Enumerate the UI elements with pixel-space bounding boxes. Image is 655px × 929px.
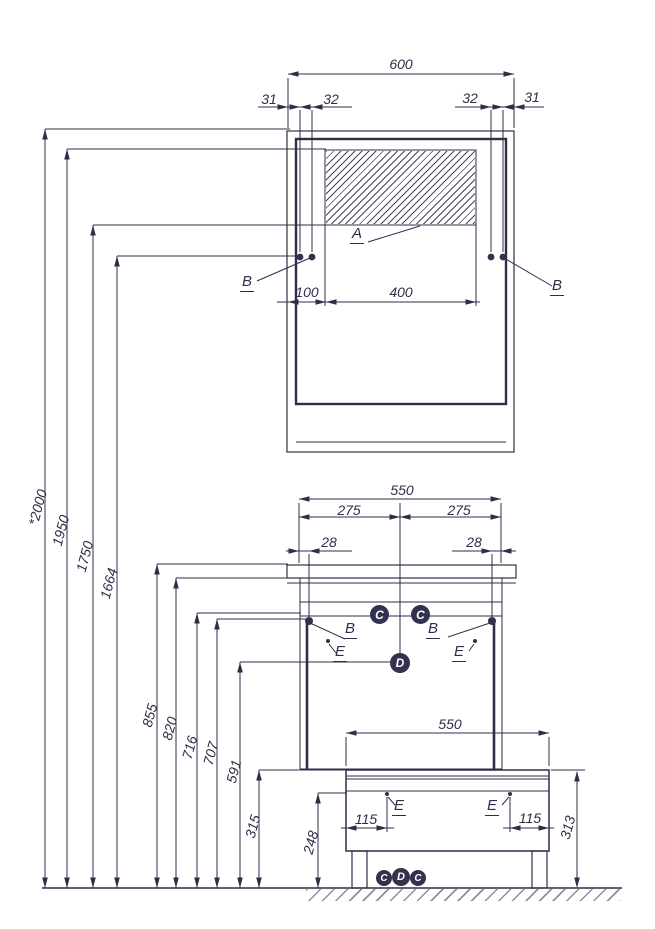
callout-screw-mid-left: E [333,644,347,662]
callout-screw-bench-right: E [485,798,499,816]
dim-leg-inset-right: 115 [508,809,552,828]
callout-hatch-area: A [350,226,364,244]
marker-c-right: C [411,605,430,624]
marker-d-center: D [390,653,410,673]
dim-bolt-offset-left: 28 [307,533,351,552]
dim-half-width-left: 275 [327,501,371,520]
callout-bolt-lower-left: B [343,621,357,639]
dim-bench-width: 550 [428,715,472,734]
callout-screw-mid-right: E [452,644,466,662]
callout-bolt-upper-left: B [240,274,254,292]
dim-hatch-offset: 100 [285,283,329,302]
dim-leg-inset-left: 115 [344,810,388,829]
marker-bench-c-left: C [376,870,392,886]
lower-dimension-lines [286,499,516,672]
dim-hatch-width: 400 [379,283,423,302]
upper-dimension-lines [258,74,544,302]
callout-bolt-lower-right: B [426,621,440,639]
technical-drawing: 600 31 32 32 31 100 400 *2000 1950 1750 … [0,0,655,929]
dim-side-offset-right: 31 [510,88,554,107]
height-extension-lines [45,129,391,793]
marker-c-left: C [370,605,389,624]
dim-overall-width-lower: 550 [380,481,424,500]
dim-bolt-spacing-right: 32 [448,89,492,108]
height-dimension-lines [45,129,318,888]
marker-bench-d: D [392,868,410,886]
callout-screw-bench-left: E [392,798,406,816]
marker-bench-c-right: C [410,870,426,886]
dim-bolt-offset-right: 28 [452,533,496,552]
bolt-markers [297,254,512,796]
drawing-linework [0,0,655,929]
dim-bolt-spacing-left: 32 [309,90,353,109]
dim-overall-width-upper: 600 [379,55,423,74]
dim-half-width-right: 275 [437,501,481,520]
dim-side-offset-left: 31 [247,90,291,109]
callout-bolt-upper-right: B [550,278,564,296]
dimension-arrows [42,71,580,888]
